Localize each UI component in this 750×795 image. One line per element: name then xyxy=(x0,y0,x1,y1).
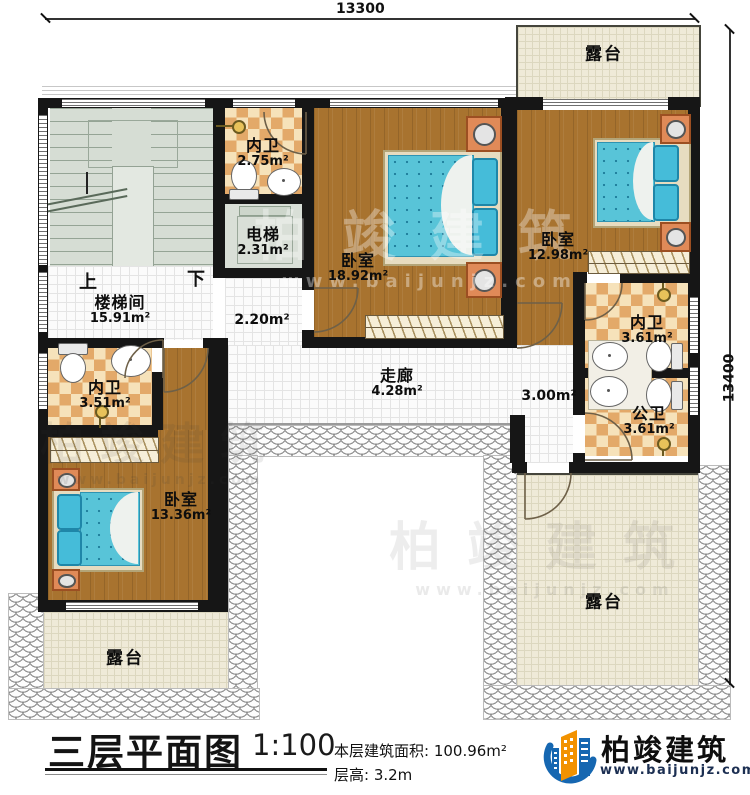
dimension-top-value: 13300 xyxy=(336,1,385,17)
door-arc xyxy=(314,288,358,332)
title-underline xyxy=(45,768,327,771)
room-label-elevator: 电梯2.31m² xyxy=(237,226,288,258)
room-label-bath-top: 内卫2.75m² xyxy=(237,137,288,169)
stair-down-label: 下 xyxy=(187,265,205,291)
floor-height-text: 层高: 3.2m xyxy=(334,764,412,785)
dimension-right-value: 13400 xyxy=(721,354,737,403)
room-label-bedroom-center: 卧室18.92m² xyxy=(328,252,388,284)
dimension-line-top xyxy=(45,18,695,20)
room-label-terrace-br: 露台 xyxy=(585,593,623,612)
room-label-terrace-top: 露台 xyxy=(585,45,623,64)
title-underline-thin xyxy=(45,774,327,775)
plan-scale: 1:100 xyxy=(252,728,336,762)
room-label-corridor: 走廊4.28m² xyxy=(371,367,422,399)
room-label-stairwell: 楼梯间15.91m² xyxy=(90,294,150,326)
logo-building-icon xyxy=(534,724,598,788)
floor-area-text: 本层建筑面积: 100.96m² xyxy=(334,740,507,761)
door-arc xyxy=(125,340,163,378)
room-label-bedroom-right: 卧室12.98m² xyxy=(528,231,588,263)
brand-url: www.baijunjz.com xyxy=(600,763,750,778)
area-label-hall-small: 2.20m² xyxy=(234,312,289,328)
door-arc xyxy=(164,348,208,392)
area-label-hall-right: 3.00m² xyxy=(521,388,576,404)
room-label-bedroom-left: 卧室13.36m² xyxy=(151,491,211,523)
floor-plan: 柏竣建筑 www.baijunjz.com 柏竣建筑 www.baijunjz.… xyxy=(0,0,750,795)
door-arc xyxy=(585,283,622,320)
room-label-bath-left: 内卫3.51m² xyxy=(79,379,130,411)
room-label-terrace-bl: 露台 xyxy=(106,649,144,668)
stair-up-label: 上 xyxy=(79,268,97,294)
door-arc xyxy=(517,303,562,348)
door-arc xyxy=(525,473,571,519)
room-label-bath-right: 内卫3.61m² xyxy=(621,314,672,346)
room-label-bath-public: 公卫3.61m² xyxy=(623,405,674,437)
